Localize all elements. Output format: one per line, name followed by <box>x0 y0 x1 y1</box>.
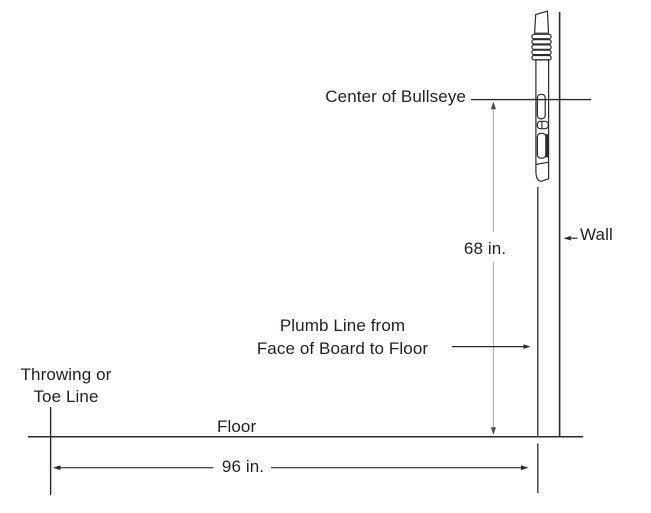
board-clip <box>537 121 548 128</box>
wall-label: Wall <box>580 225 613 245</box>
arrowhead-right-icon <box>524 344 531 349</box>
board-top-cap <box>535 11 549 33</box>
dartboard-side-profile <box>532 11 551 181</box>
board-lower-slot <box>537 133 545 158</box>
board-bottom-divider <box>536 162 549 164</box>
floor-label: Floor <box>217 417 256 437</box>
throwing-toe-line-label-line2: Toe Line <box>12 386 120 408</box>
dartboard-setup-diagram: Center of Bullseye 68 in. Wall Plumb Lin… <box>0 0 651 513</box>
board-lower-slot-bar <box>546 134 549 157</box>
arrowhead-right-icon <box>521 465 529 470</box>
board-upper-slot <box>537 94 545 119</box>
plumb-line-label-line1: Plumb Line from <box>242 314 443 337</box>
diagram-linework <box>0 0 651 513</box>
wall-label-arrow <box>564 236 578 241</box>
plumb-line-label-line2: Face of Board to Floor <box>242 337 443 360</box>
plumb-label-arrow <box>452 344 531 349</box>
arrowhead-down-icon <box>491 427 496 435</box>
dimension-line-68in <box>491 102 496 435</box>
arrowhead-left-icon <box>53 465 61 470</box>
arrowhead-up-icon <box>491 102 496 110</box>
bullseye-height-dimension-label: 68 in. <box>459 239 511 259</box>
throw-distance-dimension-label: 96 in. <box>213 457 273 477</box>
throwing-toe-line-label: Throwing or Toe Line <box>12 364 120 408</box>
throwing-toe-line-label-line1: Throwing or <box>12 364 120 386</box>
arrowhead-left-icon <box>564 236 571 241</box>
dimension-line-96in <box>53 465 529 470</box>
board-ridges <box>532 34 551 60</box>
plumb-line-label: Plumb Line from Face of Board to Floor <box>242 314 443 360</box>
center-of-bullseye-label: Center of Bullseye <box>318 87 466 107</box>
